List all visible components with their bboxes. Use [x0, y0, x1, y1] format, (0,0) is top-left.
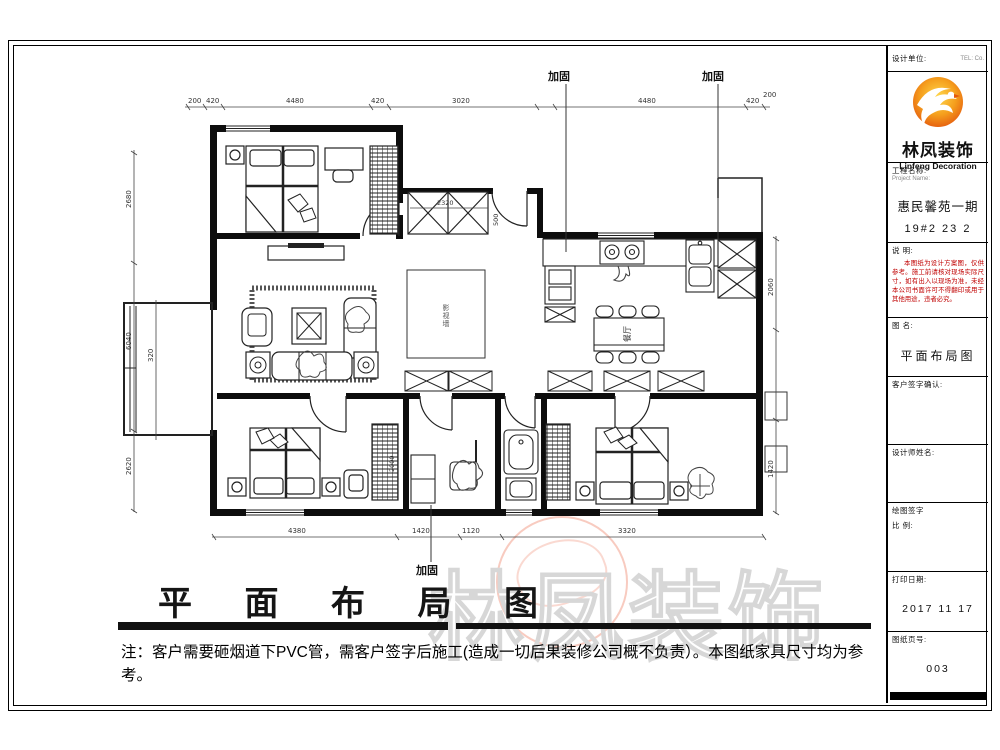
bedroom3-furniture	[546, 424, 714, 504]
svg-text:4480: 4480	[286, 97, 304, 105]
svg-text:2620: 2620	[125, 457, 133, 475]
dining-cabinets	[548, 371, 704, 391]
bathroom-fixtures	[504, 430, 538, 500]
tel-label: TEL: Co.	[960, 56, 984, 62]
page-number: 003	[892, 663, 984, 675]
parapet-step	[718, 178, 762, 232]
svg-text:2680: 2680	[125, 190, 133, 208]
svg-text:1420: 1420	[767, 460, 775, 478]
tb-design-unit: 设计单位: TEL: Co.	[888, 46, 988, 72]
callout-top1: 加固	[547, 69, 570, 83]
svg-text:420: 420	[746, 97, 759, 105]
tb-print-date: 打印日期: 2017 11 17	[888, 572, 988, 632]
svg-text:200: 200	[188, 97, 201, 105]
project-number: 19#2 23 2	[892, 223, 984, 235]
tb-drawing-name: 图 名: 平面布局图	[888, 318, 988, 377]
dim-top: 200 420 4480 420 3020 4480 420 200	[185, 91, 776, 110]
callout-top2: 加固	[701, 69, 724, 83]
construction-note: 注：客户需要砸烟道下PVC管，需客户签字后施工(造成一切后果装修公司概不负责）。…	[121, 641, 879, 687]
drawing-sheet: 林凤装饰	[0, 0, 1000, 750]
svg-text:3320: 3320	[618, 527, 636, 535]
svg-text:500: 500	[492, 214, 500, 226]
svg-text:3020: 3020	[452, 97, 470, 105]
bedroom2-furniture	[228, 424, 398, 500]
title-underline-left	[118, 622, 448, 630]
project-sublabel: Project Name:	[892, 176, 984, 182]
title-underline-right	[456, 623, 871, 629]
callout-bottom: 加固	[415, 563, 438, 577]
svg-text:420: 420	[371, 97, 384, 105]
svg-text:6040: 6040	[125, 332, 133, 350]
print-date: 2017 11 17	[892, 603, 984, 615]
phoenix-logo-icon	[907, 75, 969, 129]
svg-text:2320: 2320	[437, 199, 454, 207]
bedroom1-furniture	[226, 146, 398, 234]
draw-sign-label: 绘图签字	[892, 505, 984, 516]
designer-label: 设计师姓名:	[892, 447, 984, 458]
svg-text:420: 420	[206, 97, 219, 105]
remark-text: 本图纸为设计方案图，仅供参考。施工前请核对现场实际尺寸，如有出入以现场为准，未经…	[892, 259, 984, 304]
tb-scale: 绘图签字 比 例:	[888, 503, 988, 572]
sheet-title: 平 面 布 局 图	[158, 576, 560, 625]
tb-project: 工程名称: Project Name: 惠民馨苑一期 19#2 23 2	[888, 163, 988, 243]
tb-client-sign: 客户签字确认:	[888, 377, 988, 445]
title-block: 设计单位: TEL: Co. 林凤装饰 Linfeng Decor	[886, 46, 988, 703]
hall-cabinets	[405, 371, 492, 391]
remark-label: 说 明:	[892, 245, 984, 256]
hall-area: 影视墙	[407, 270, 485, 358]
print-date-label: 打印日期:	[892, 574, 984, 585]
floor-plan: 影视墙	[0, 0, 1000, 750]
svg-text:4380: 4380	[288, 527, 306, 535]
dim-right: 2060 1420	[767, 236, 779, 515]
living-room-furniture	[242, 243, 378, 380]
dining: 餐厅	[594, 306, 664, 363]
title-block-bar	[890, 692, 986, 700]
svg-text:4480: 4480	[638, 97, 656, 105]
tb-logo: 林凤装饰 Linfeng Decoration	[888, 72, 988, 163]
project-name: 惠民馨苑一期	[892, 196, 984, 215]
svg-text:1120: 1120	[462, 527, 480, 535]
drawing-name-label: 图 名:	[892, 320, 984, 331]
page-label: 图纸页号:	[892, 634, 984, 645]
svg-text:320: 320	[147, 349, 155, 362]
svg-text:2000: 2000	[388, 455, 396, 472]
logo-cn-text: 林凤装饰	[892, 136, 984, 161]
dining-label: 餐厅	[623, 326, 632, 342]
dim-bottom: 4380 1420 1120 3320	[212, 527, 766, 540]
svg-text:2060: 2060	[767, 278, 775, 296]
drawing-name: 平面布局图	[892, 347, 984, 364]
tb-remark: 说 明: 本图纸为设计方案图，仅供参考。施工前请核对现场实际尺寸，如有出入以现场…	[888, 243, 988, 318]
svg-text:200: 200	[763, 91, 776, 99]
design-unit-label: 设计单位:	[892, 53, 927, 64]
study-furniture	[411, 440, 483, 503]
balcony-bay-window	[124, 303, 212, 435]
project-label: 工程名称:	[892, 165, 984, 176]
client-sign-label: 客户签字确认:	[892, 379, 984, 390]
tb-page: 图纸页号: 003	[888, 632, 988, 703]
scale-label: 比 例:	[892, 520, 984, 531]
tb-designer: 设计师姓名:	[888, 445, 988, 503]
svg-text:1420: 1420	[412, 527, 430, 535]
hall-area-label: 影视墙	[442, 303, 450, 328]
